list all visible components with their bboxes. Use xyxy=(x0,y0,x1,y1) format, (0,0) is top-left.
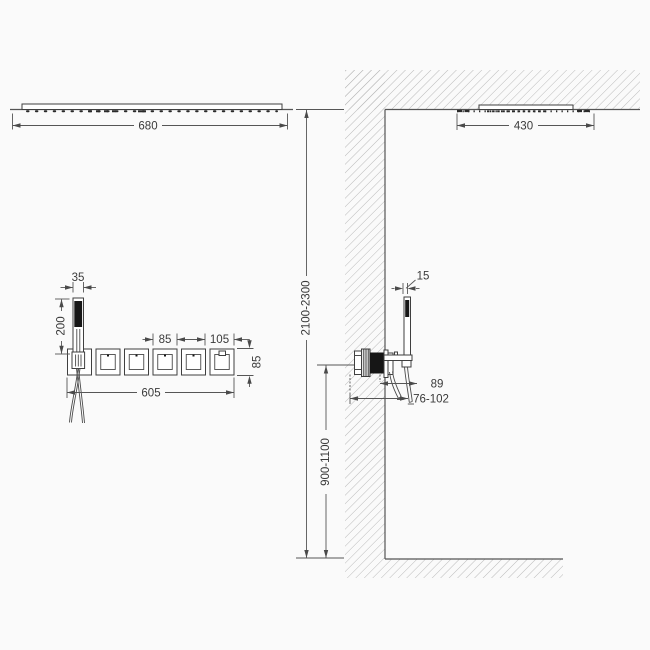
outlet-pin xyxy=(395,352,398,355)
dim-89-label: 89 xyxy=(431,378,444,390)
valve-body-block xyxy=(370,353,384,374)
dim-15-label: 15 xyxy=(417,271,430,283)
dim-105: 105 xyxy=(197,334,250,347)
panel-module-6 xyxy=(210,349,234,375)
hand-shower-head-front xyxy=(74,301,82,327)
dim-15: 15 xyxy=(392,271,430,295)
dim-105-label: 105 xyxy=(210,334,229,346)
overhead-panel-side xyxy=(479,105,573,110)
dim-2100-2300-label: 2100-2300 xyxy=(301,281,313,336)
floor-hatch xyxy=(385,559,563,578)
escutcheon-plate xyxy=(384,350,388,378)
dim-605-label: 605 xyxy=(141,388,160,400)
dim-2100-2300: 2100-2300 xyxy=(296,110,344,559)
panel-module-4 xyxy=(153,349,177,375)
wall-hatch xyxy=(345,70,385,578)
dim-605: 605 xyxy=(67,378,234,400)
dim-430-label: 430 xyxy=(514,121,533,133)
dim-35: 35 xyxy=(61,272,97,293)
dim-680-label: 680 xyxy=(138,121,157,133)
dim-200-label: 200 xyxy=(56,316,68,335)
control-panel xyxy=(68,349,235,375)
drawing-svg: 680 430 2100-2300 900-1100 xyxy=(0,0,650,650)
dim-76-102-label: 76-102 xyxy=(413,394,449,406)
holder-knob-side xyxy=(402,361,411,368)
panel-module-5 xyxy=(182,349,206,375)
dim-89: 89 xyxy=(380,375,443,391)
overhead-panel-front xyxy=(22,104,282,110)
dim-85-module: 85 xyxy=(143,334,206,347)
hand-shower-front xyxy=(70,298,85,423)
installation-drawing: 680 430 2100-2300 900-1100 xyxy=(0,0,650,650)
dim-85-height: 85 xyxy=(237,340,264,388)
dim-680: 680 xyxy=(13,114,288,133)
dim-35-label: 35 xyxy=(72,272,85,284)
ceiling-hatch xyxy=(345,70,640,110)
hand-shower-hose-front xyxy=(70,369,85,424)
dim-430: 430 xyxy=(457,114,594,133)
panel-module-2 xyxy=(96,349,120,375)
hand-shower-head-side xyxy=(405,300,409,317)
rough-in-body xyxy=(355,351,362,375)
valve-lever xyxy=(390,372,404,400)
dim-85-module-label: 85 xyxy=(159,334,172,346)
dim-900-1100-label: 900-1100 xyxy=(320,438,332,486)
dim-200: 200 xyxy=(55,299,70,354)
outlet-bar xyxy=(384,355,412,361)
wall-section xyxy=(345,70,640,578)
overhead-shower-front xyxy=(10,104,293,111)
dim-85-height-label: 85 xyxy=(252,356,264,369)
panel-module-3 xyxy=(125,349,149,375)
